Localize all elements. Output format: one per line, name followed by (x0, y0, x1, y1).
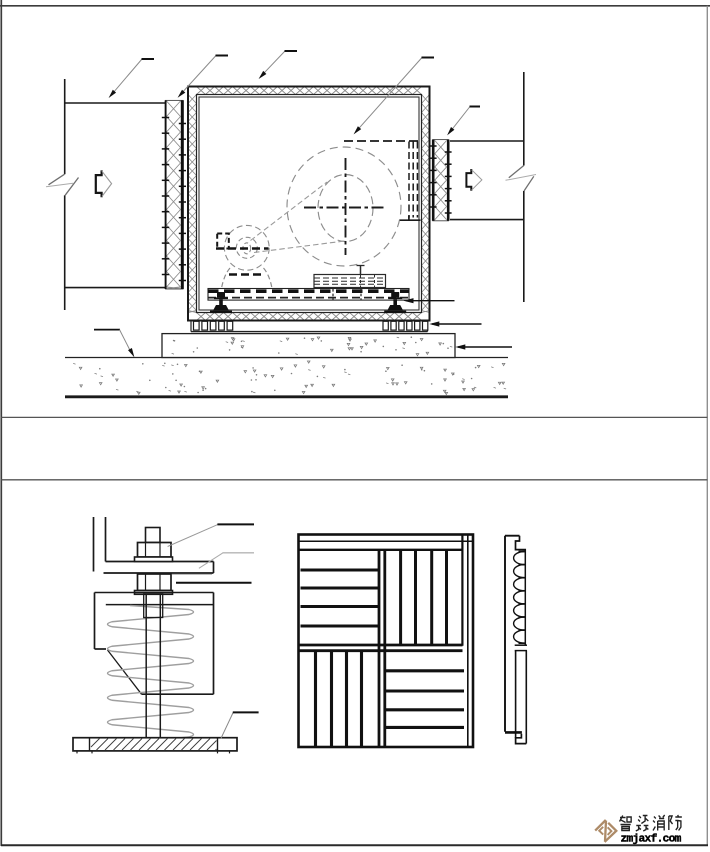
svg-text:zmjaxf.com: zmjaxf.com (621, 833, 682, 845)
